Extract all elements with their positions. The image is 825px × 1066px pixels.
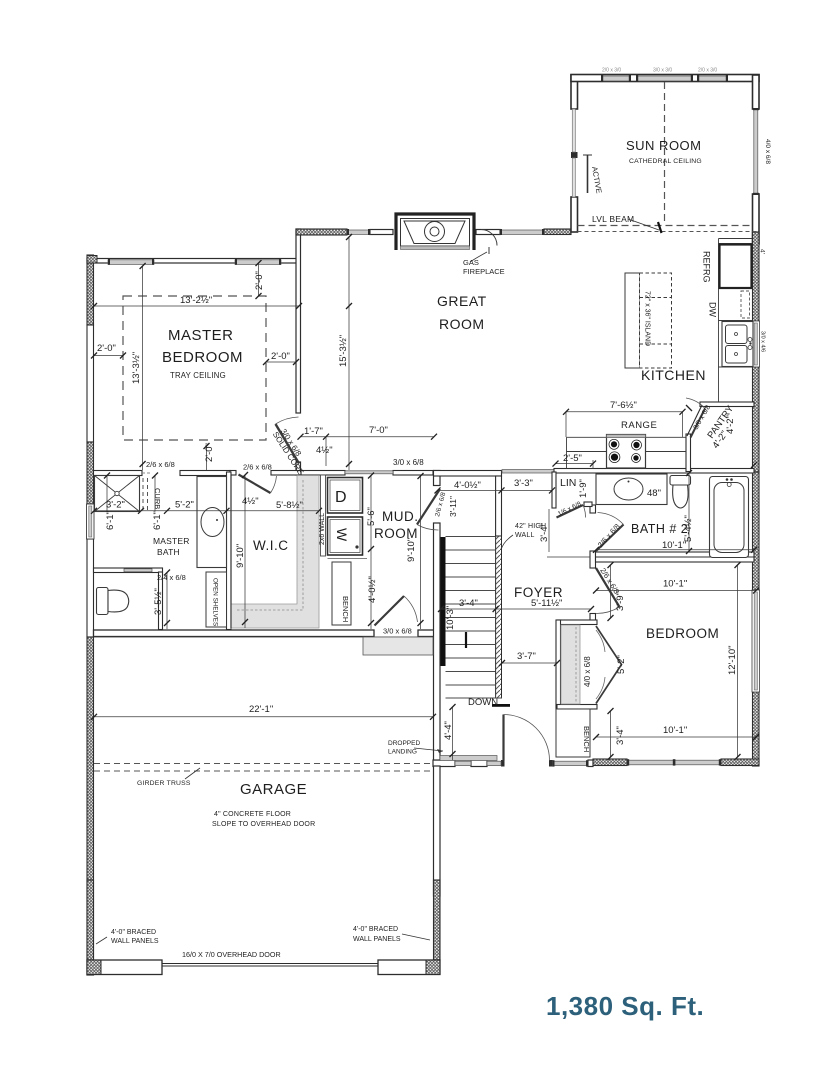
svg-text:KITCHEN: KITCHEN [641, 367, 706, 383]
svg-text:4'-2": 4'-2" [725, 415, 736, 434]
svg-text:2/0 x 3/0: 2/0 x 3/0 [602, 68, 621, 74]
svg-text:2'-0": 2'-0" [254, 271, 265, 290]
svg-text:2/6 x 6/8: 2/6 x 6/8 [243, 463, 272, 472]
svg-text:5'-6": 5'-6" [366, 507, 377, 526]
svg-text:MUD.: MUD. [382, 509, 419, 524]
svg-text:2/4 x 6/8: 2/4 x 6/8 [157, 573, 186, 582]
svg-text:2'-0": 2'-0" [97, 343, 116, 354]
svg-text:1/6 x 6/8: 1/6 x 6/8 [557, 500, 583, 517]
svg-text:10'-1": 10'-1" [663, 579, 687, 590]
svg-text:GREAT: GREAT [437, 293, 487, 309]
svg-text:D: D [335, 489, 347, 506]
svg-text:4/0 x 6/8: 4/0 x 6/8 [583, 656, 592, 687]
svg-text:72" x 36" ISLAND: 72" x 36" ISLAND [644, 291, 651, 346]
svg-text:42" HIGH: 42" HIGH [515, 523, 546, 530]
svg-text:DOWN: DOWN [468, 697, 498, 708]
svg-text:4½": 4½" [242, 496, 259, 507]
svg-text:MASTER: MASTER [153, 536, 190, 546]
svg-text:OPEN SHELVES: OPEN SHELVES [212, 578, 219, 626]
svg-text:15'-3½": 15'-3½" [338, 335, 349, 367]
svg-text:10'-1": 10'-1" [663, 725, 687, 736]
svg-text:4/0 x 6/8: 4/0 x 6/8 [764, 139, 771, 164]
svg-text:ROOM: ROOM [439, 316, 485, 332]
svg-text:7'-0": 7'-0" [369, 425, 388, 436]
svg-text:10'-3": 10'-3" [445, 606, 456, 630]
svg-text:13'-2½": 13'-2½" [180, 295, 212, 306]
svg-text:2x6 WALL: 2x6 WALL [319, 513, 326, 545]
svg-text:1'-9": 1'-9" [578, 479, 589, 498]
svg-text:SUN ROOM: SUN ROOM [626, 138, 702, 153]
svg-text:GAS: GAS [463, 258, 479, 267]
svg-text:BATH # 2: BATH # 2 [631, 522, 688, 536]
svg-text:5'-2": 5'-2" [616, 655, 627, 674]
svg-text:WALL PANELS: WALL PANELS [353, 936, 401, 943]
svg-text:3'-2": 3'-2" [106, 500, 125, 511]
svg-text:FIREPLACE: FIREPLACE [463, 267, 505, 276]
svg-text:3/0 x 6/8: 3/0 x 6/8 [393, 458, 424, 467]
svg-text:3'-7": 3'-7" [517, 651, 536, 662]
svg-text:BEDROOM: BEDROOM [162, 349, 243, 366]
svg-text:W.I.C: W.I.C [253, 538, 289, 553]
svg-text:4'-4": 4'-4" [443, 721, 454, 740]
svg-text:12'-10": 12'-10" [727, 646, 738, 675]
svg-text:2'-0": 2'-0" [204, 443, 215, 462]
svg-text:2/6 x 6/8: 2/6 x 6/8 [146, 460, 175, 469]
svg-text:WALL PANELS: WALL PANELS [111, 938, 159, 945]
svg-text:LIN: LIN [560, 477, 576, 489]
svg-text:GIRDER TRUSS: GIRDER TRUSS [137, 780, 191, 787]
svg-text:DROPPED: DROPPED [388, 740, 420, 747]
svg-text:2'-0": 2'-0" [271, 351, 290, 362]
svg-text:5'-8½": 5'-8½" [276, 500, 303, 511]
svg-text:7'-6½": 7'-6½" [610, 400, 637, 411]
svg-text:4'-0" BRACED: 4'-0" BRACED [353, 926, 398, 933]
svg-text:13'-3½": 13'-3½" [131, 352, 142, 384]
svg-text:3'-5½": 3'-5½" [153, 588, 164, 615]
svg-text:5'-2": 5'-2" [175, 500, 194, 511]
svg-text:BENCH: BENCH [582, 726, 591, 752]
svg-text:3/0 x 4/6: 3/0 x 4/6 [760, 331, 766, 352]
svg-text:1,380 Sq. Ft.: 1,380 Sq. Ft. [546, 991, 704, 1021]
svg-text:3'-11": 3'-11" [448, 496, 458, 517]
svg-text:22'-1": 22'-1" [249, 704, 273, 715]
svg-text:BEDROOM: BEDROOM [646, 626, 719, 641]
svg-text:9'-10": 9'-10" [235, 544, 246, 568]
svg-text:REFRG: REFRG [702, 251, 712, 283]
svg-text:6'-1": 6'-1" [105, 511, 116, 530]
svg-text:CATHEDRAL CEILING: CATHEDRAL CEILING [629, 158, 702, 165]
svg-text:4'-0½": 4'-0½" [454, 480, 481, 491]
svg-text:5'-4½": 5'-4½" [683, 515, 694, 542]
svg-text:MASTER: MASTER [168, 327, 234, 344]
svg-text:4" CONCRETE FLOOR: 4" CONCRETE FLOOR [214, 811, 291, 818]
svg-text:ACTIVE: ACTIVE [590, 166, 604, 194]
svg-text:48": 48" [647, 488, 661, 499]
svg-text:3'-9": 3'-9" [615, 592, 626, 611]
svg-text:LANDING: LANDING [388, 749, 417, 756]
svg-text:LVL BEAM: LVL BEAM [592, 214, 634, 224]
svg-text:9'-10": 9'-10" [406, 538, 417, 562]
svg-text:3/0 x 3/0: 3/0 x 3/0 [653, 68, 672, 74]
svg-text:4': 4' [759, 249, 766, 254]
svg-text:WALL: WALL [515, 532, 535, 539]
svg-text:2/6 x 6/8: 2/6 x 6/8 [596, 522, 622, 549]
svg-text:W: W [334, 528, 350, 542]
svg-text:DW: DW [708, 302, 718, 317]
svg-text:SLOPE TO OVERHEAD DOOR: SLOPE TO OVERHEAD DOOR [212, 821, 315, 828]
svg-text:3'-3": 3'-3" [514, 478, 533, 489]
svg-text:4½": 4½" [316, 445, 333, 456]
svg-text:4'-0" BRACED: 4'-0" BRACED [111, 929, 156, 936]
svg-text:2'-5": 2'-5" [563, 453, 582, 464]
svg-text:2/0 x 3/0: 2/0 x 3/0 [698, 68, 717, 74]
svg-text:BATH: BATH [157, 547, 180, 557]
svg-text:16/0 X 7/0 OVERHEAD DOOR: 16/0 X 7/0 OVERHEAD DOOR [182, 950, 281, 959]
svg-text:CURB: CURB [153, 488, 162, 509]
svg-text:1'-7": 1'-7" [304, 426, 323, 437]
svg-text:4'-0½": 4'-0½" [367, 576, 378, 603]
svg-text:3'-4": 3'-4" [459, 598, 478, 609]
svg-text:TRAY CEILING: TRAY CEILING [170, 371, 226, 380]
svg-text:GARAGE: GARAGE [240, 781, 307, 798]
svg-text:BENCH: BENCH [341, 596, 350, 622]
svg-text:3/0 x 6/8: 3/0 x 6/8 [383, 627, 412, 636]
svg-text:6'-1": 6'-1" [152, 511, 163, 530]
svg-text:5'-11½": 5'-11½" [531, 598, 562, 609]
svg-text:3'-4": 3'-4" [615, 726, 626, 745]
svg-text:RANGE: RANGE [621, 420, 657, 431]
